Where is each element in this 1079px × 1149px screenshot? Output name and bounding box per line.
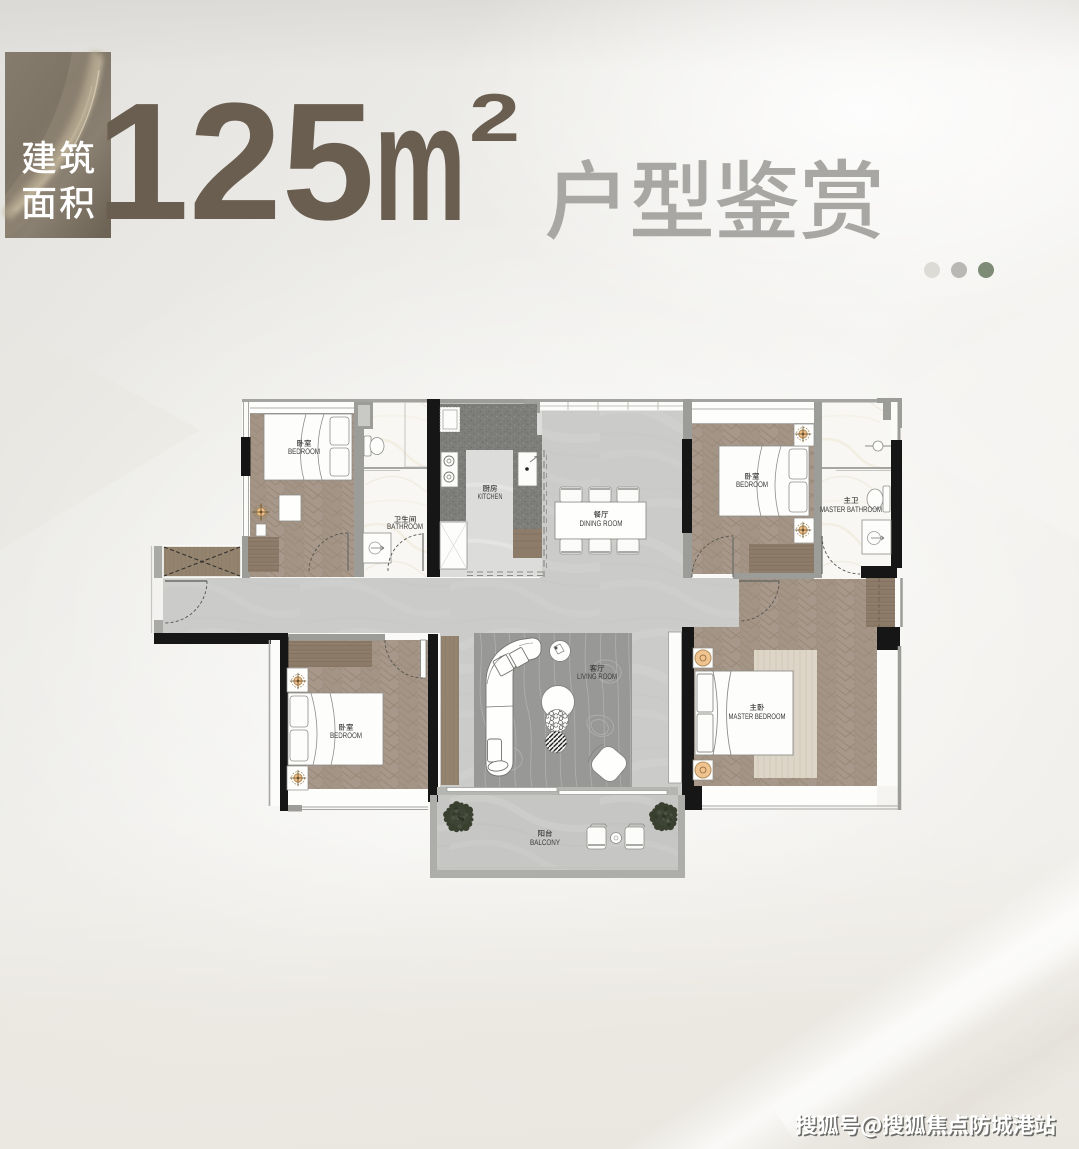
svg-text:125: 125 bbox=[96, 69, 375, 255]
svg-text:m: m bbox=[374, 71, 466, 256]
svg-text:2: 2 bbox=[469, 80, 520, 156]
